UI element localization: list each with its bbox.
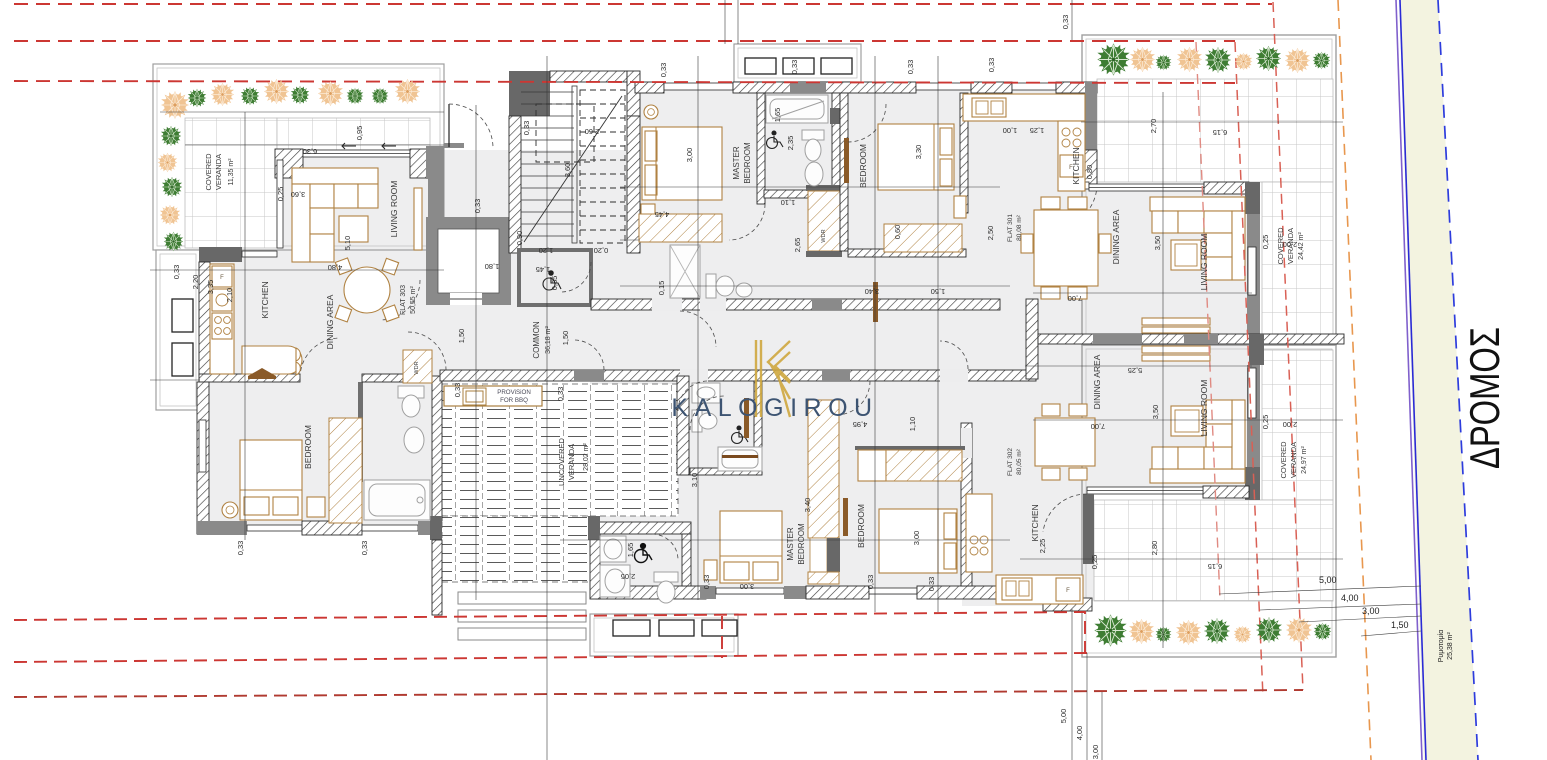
svg-text:4,80: 4,80 xyxy=(328,263,343,272)
svg-text:5,25: 5,25 xyxy=(1128,366,1143,375)
svg-text:6,30: 6,30 xyxy=(303,147,318,156)
svg-text:3,00: 3,00 xyxy=(685,148,694,163)
svg-text:1,45: 1,45 xyxy=(536,265,551,274)
svg-text:KALOGIROU: KALOGIROU xyxy=(671,394,878,422)
svg-text:VERANDA: VERANDA xyxy=(214,154,223,190)
svg-text:0,95: 0,95 xyxy=(355,126,364,141)
svg-text:MASTER: MASTER xyxy=(732,146,741,180)
svg-text:VERANDA: VERANDA xyxy=(1286,228,1295,264)
svg-text:1,10: 1,10 xyxy=(781,198,796,207)
svg-text:1,25: 1,25 xyxy=(1030,126,1045,135)
svg-text:5,00: 5,00 xyxy=(1319,575,1337,585)
svg-text:ΔΡΟΜΟΣ: ΔΡΟΜΟΣ xyxy=(1461,327,1508,469)
svg-text:VERANDA: VERANDA xyxy=(567,444,576,480)
svg-text:0,25: 0,25 xyxy=(1261,415,1270,430)
svg-text:3,00: 3,00 xyxy=(1362,606,1380,616)
svg-text:3,10: 3,10 xyxy=(690,473,699,488)
svg-text:COMMON: COMMON xyxy=(532,321,541,359)
svg-text:0,33: 0,33 xyxy=(906,60,915,75)
svg-text:1,65: 1,65 xyxy=(773,108,782,123)
svg-text:0,33: 0,33 xyxy=(172,265,181,280)
svg-text:0,60: 0,60 xyxy=(893,225,902,240)
svg-text:7,00: 7,00 xyxy=(1068,294,1083,303)
svg-text:COVERED: COVERED xyxy=(1276,227,1285,265)
svg-text:4,00: 4,00 xyxy=(1341,593,1359,603)
svg-text:DINING AREA: DINING AREA xyxy=(1092,354,1102,409)
svg-text:0,25: 0,25 xyxy=(1261,235,1270,250)
svg-text:28,02 m²: 28,02 m² xyxy=(583,443,590,471)
svg-text:0,20: 0,20 xyxy=(594,246,609,255)
svg-text:2,10: 2,10 xyxy=(225,288,234,303)
svg-text:Ρυμοτομία: Ρυμοτομία xyxy=(1437,630,1445,663)
svg-text:0,33: 0,33 xyxy=(453,383,462,398)
svg-text:80,08 m²: 80,08 m² xyxy=(1016,214,1023,240)
svg-text:2,80: 2,80 xyxy=(1150,541,1159,556)
svg-text:11,35 m²: 11,35 m² xyxy=(228,158,235,186)
svg-text:5,00: 5,00 xyxy=(1059,709,1068,724)
svg-text:4,00: 4,00 xyxy=(1075,726,1084,741)
svg-text:F: F xyxy=(220,275,224,281)
svg-text:0,33: 0,33 xyxy=(790,60,799,75)
svg-text:1,65: 1,65 xyxy=(626,543,635,558)
svg-text:3,60: 3,60 xyxy=(291,190,306,199)
svg-text:0,33: 0,33 xyxy=(522,121,531,136)
svg-text:7,00: 7,00 xyxy=(1091,422,1106,431)
svg-text:24,42 m²: 24,42 m² xyxy=(1298,232,1305,260)
svg-text:0,33: 0,33 xyxy=(236,541,245,556)
svg-text:4,45: 4,45 xyxy=(655,210,670,219)
svg-text:2,50: 2,50 xyxy=(986,226,995,241)
svg-text:0,25: 0,25 xyxy=(1090,555,1099,570)
svg-text:2,20: 2,20 xyxy=(191,275,200,290)
svg-text:24,97 m²: 24,97 m² xyxy=(1301,446,1308,474)
svg-text:2,65: 2,65 xyxy=(793,238,802,253)
svg-text:80,05 m²: 80,05 m² xyxy=(1016,448,1023,474)
svg-text:BEDROOM: BEDROOM xyxy=(797,523,806,565)
svg-text:0,33: 0,33 xyxy=(927,577,936,592)
svg-text:LIVING ROOM: LIVING ROOM xyxy=(1199,380,1209,437)
svg-text:BEDROOM: BEDROOM xyxy=(858,144,868,188)
svg-text:1,50: 1,50 xyxy=(1391,620,1409,630)
svg-text:0,33: 0,33 xyxy=(866,575,875,590)
svg-text:DINING AREA: DINING AREA xyxy=(1111,209,1121,264)
svg-text:1,80: 1,80 xyxy=(485,262,500,271)
svg-text:PROViSiON: PROViSiON xyxy=(497,389,531,396)
svg-text:5,10: 5,10 xyxy=(343,236,352,251)
svg-text:0,15: 0,15 xyxy=(657,281,666,296)
svg-text:0,33: 0,33 xyxy=(473,199,482,214)
svg-text:UNCOVERED: UNCOVERED xyxy=(557,437,566,486)
svg-text:F: F xyxy=(1066,588,1070,594)
svg-text:FLAT 303: FLAT 303 xyxy=(400,285,407,315)
svg-text:6,15: 6,15 xyxy=(1208,562,1223,571)
svg-text:2,60: 2,60 xyxy=(585,127,600,136)
svg-text:2,35: 2,35 xyxy=(786,136,795,151)
svg-text:0,33: 0,33 xyxy=(702,575,711,590)
svg-text:KITCHEN: KITCHEN xyxy=(1030,504,1040,541)
svg-text:0,33: 0,33 xyxy=(556,387,565,402)
svg-text:FLAT 301: FLAT 301 xyxy=(1007,214,1014,242)
svg-text:0,25: 0,25 xyxy=(276,187,285,202)
svg-text:1,50: 1,50 xyxy=(457,329,466,344)
svg-text:2,00: 2,00 xyxy=(1283,420,1298,429)
svg-text:0,33: 0,33 xyxy=(1061,15,1070,30)
svg-text:COVERED: COVERED xyxy=(1279,441,1288,479)
svg-text:WDR: WDR xyxy=(414,361,420,374)
svg-text:2,05: 2,05 xyxy=(621,572,636,581)
svg-text:VERANDA: VERANDA xyxy=(1289,442,1298,478)
svg-text:BEDROOM: BEDROOM xyxy=(743,142,752,184)
svg-text:3,00: 3,00 xyxy=(912,531,921,546)
svg-text:WDR: WDR xyxy=(821,229,827,242)
svg-text:MASTER: MASTER xyxy=(786,527,795,561)
svg-text:3,60: 3,60 xyxy=(563,163,572,178)
svg-text:3,30: 3,30 xyxy=(914,145,923,160)
svg-text:LIVING ROOM: LIVING ROOM xyxy=(389,181,399,238)
svg-text:1,00: 1,00 xyxy=(1003,126,1018,135)
svg-text:FOR BBQ: FOR BBQ xyxy=(500,397,528,404)
svg-text:1,10: 1,10 xyxy=(908,417,917,432)
svg-text:25,38 m²: 25,38 m² xyxy=(1447,632,1454,660)
svg-text:0,80: 0,80 xyxy=(1085,165,1094,180)
svg-text:1,20: 1,20 xyxy=(539,246,554,255)
svg-text:3,40: 3,40 xyxy=(865,287,880,296)
svg-text:1,50: 1,50 xyxy=(931,287,946,296)
svg-text:3,50: 3,50 xyxy=(1153,236,1162,251)
svg-text:3,50: 3,50 xyxy=(1151,405,1160,420)
svg-text:2,70: 2,70 xyxy=(1149,119,1158,134)
svg-text:DINING AREA: DINING AREA xyxy=(325,294,335,349)
svg-text:0,90: 0,90 xyxy=(515,231,524,246)
svg-text:COVERED: COVERED xyxy=(204,153,213,191)
svg-text:0,33: 0,33 xyxy=(659,63,668,78)
svg-text:3,35: 3,35 xyxy=(206,280,215,295)
svg-text:FLAT 302: FLAT 302 xyxy=(1007,448,1014,476)
svg-text:3,00: 3,00 xyxy=(740,582,755,591)
svg-text:LIVING ROOM: LIVING ROOM xyxy=(1199,234,1209,291)
svg-text:KITCHEN: KITCHEN xyxy=(260,281,270,318)
svg-text:36,18 m²: 36,18 m² xyxy=(545,326,552,354)
svg-text:3,40: 3,40 xyxy=(803,498,812,513)
svg-text:0,85: 0,85 xyxy=(550,276,559,291)
svg-text:6,15: 6,15 xyxy=(1213,128,1228,137)
svg-text:3,00: 3,00 xyxy=(1091,745,1100,760)
svg-text:BEDROOM: BEDROOM xyxy=(856,504,866,548)
svg-text:KITCHEN: KITCHEN xyxy=(1071,147,1081,184)
svg-text:1,50: 1,50 xyxy=(561,331,570,346)
svg-text:50,55 m²: 50,55 m² xyxy=(410,286,417,314)
svg-text:0,33: 0,33 xyxy=(360,541,369,556)
svg-text:0,33: 0,33 xyxy=(987,58,996,73)
svg-text:BEDROOM: BEDROOM xyxy=(303,425,313,469)
